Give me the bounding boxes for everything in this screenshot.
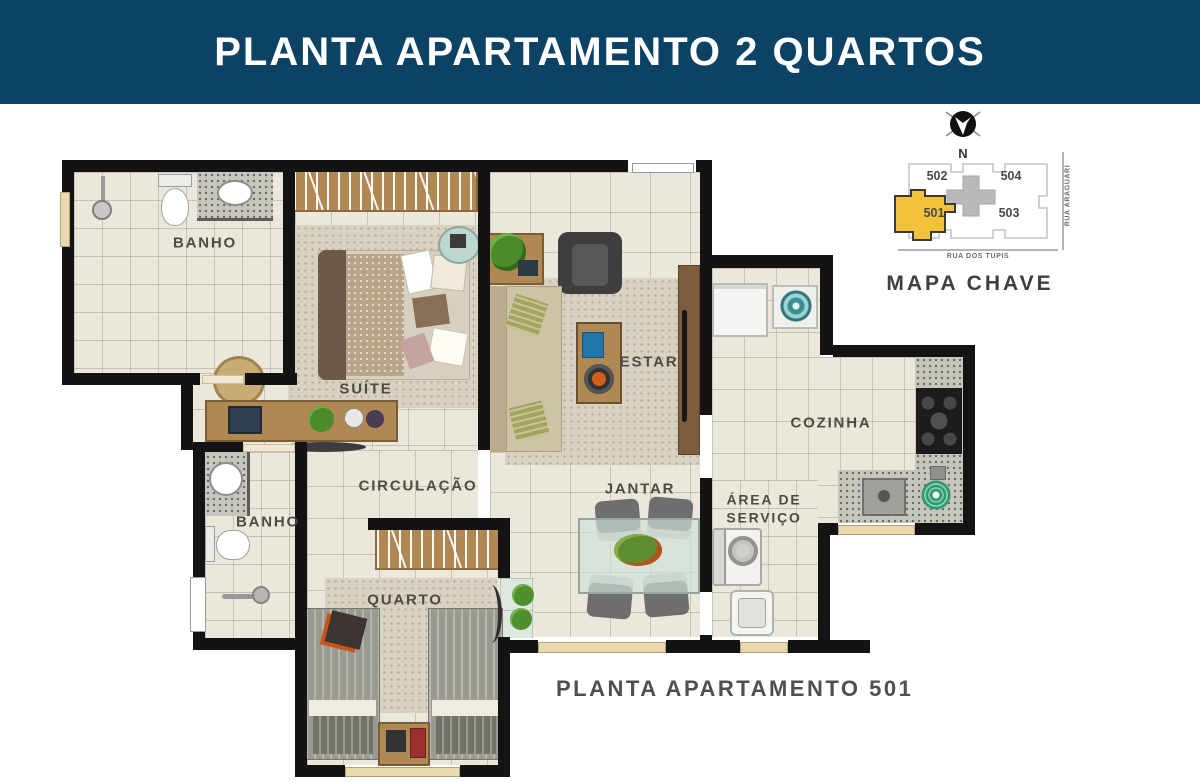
unit-label-504: 504 [993,169,1029,183]
wall [510,640,538,653]
window [345,767,460,777]
room-label-jantar: JANTAR [605,481,676,498]
vanity-sink-suite [217,180,253,206]
wall [478,160,490,450]
wall [818,523,830,640]
toilet-icon-social [216,530,250,560]
wall [712,255,833,268]
plan-caption: PLANTA APARTAMENTO 501 [556,676,913,702]
wardrobe-quarto-icon [375,526,503,570]
vanity-table-items [450,234,466,248]
keymap-title: MAPA CHAVE [880,272,1060,296]
wall [820,255,833,355]
wardrobe-suite-icon [292,166,478,212]
floorplan-page: PLANTA APARTAMENTO 2 QUARTOS [0,0,1200,782]
bed-right-pillow [434,716,496,754]
wall [498,637,510,777]
wall [700,478,712,592]
street-line-bottom [898,249,1058,251]
vanity-edge-social [247,448,250,516]
entry-door-icon [632,163,694,173]
nightstand-magazine [410,728,426,758]
wall [788,640,870,653]
wall [498,518,510,578]
wall [963,345,975,535]
tv-icon [682,310,687,422]
keymap-building [893,152,1063,247]
window [740,642,788,653]
fridge-icon [712,283,768,337]
toilet-icon-suite [161,188,189,226]
room-label-quarto: QUARTO [367,592,443,609]
toilet-tank-social [205,526,215,562]
wall [193,442,205,577]
desk-bowl [344,408,364,428]
window [60,192,70,247]
room-label-suite: SUÍTE [339,381,392,398]
desk-bowl-dark [366,410,384,428]
bed-suite-foot-blanket [318,250,346,380]
washer-drum-icon [779,289,813,323]
wall [915,523,975,535]
wall [700,635,712,653]
wall [295,765,345,777]
unit-label-503: 503 [991,206,1027,220]
room-label-area-servico: ÁREA DE SERVIÇO [716,492,812,527]
washing-machine-drum [728,536,758,566]
sink-drain [878,490,890,502]
unit-label-501: 501 [916,206,952,220]
room-label-banho-suite: BANHO [173,235,237,252]
room-label-estar: ESTAR [620,354,679,371]
wall [193,638,307,650]
room-label-banho-social: BANHO [236,514,300,531]
wall [62,373,200,385]
washing-machine-lid [714,530,726,584]
side-table-book [518,260,538,276]
door-threshold [243,444,295,452]
wall [368,518,510,530]
wall [245,373,297,385]
vanity-edge [197,218,273,221]
drainer-cup [930,466,946,480]
shower-head-icon [92,200,112,220]
bed-suite-pillow [412,294,450,328]
laundry-tank-basin [738,598,766,628]
sofa-back [490,286,506,452]
wall [460,765,510,777]
cooktop-icon [916,388,962,454]
wall [62,160,628,172]
door-threshold [202,375,244,384]
compass-icon [940,106,986,146]
wall [700,160,712,415]
street-label-bottom: RUA DOS TUPIS [898,253,1058,260]
window [538,642,666,653]
armchair-seat [572,244,608,286]
wall [283,160,295,373]
desk-laptop-icon [228,406,262,434]
unit-label-502: 502 [919,169,955,183]
window [838,525,915,535]
toilet-tank-suite [158,174,192,187]
dish-drainer-icon [920,478,952,512]
street-label-right: RUA ARAGUARI [1065,156,1072,236]
wall [295,442,307,777]
header-banner: PLANTA APARTAMENTO 2 QUARTOS [0,0,1200,104]
bed-left-sheet [309,700,376,716]
bed-left-pillow [311,716,373,754]
bed-suite-quilt [346,254,404,376]
window [190,577,206,632]
desk-plant-icon [308,406,334,432]
vanity-sink-social [209,462,243,496]
bed-right-sheet [432,700,499,716]
coffee-table-books [582,332,604,358]
nightstand-lamp [386,730,406,752]
page-title: PLANTA APARTAMENTO 2 QUARTOS [214,30,986,75]
room-label-circulacao: CIRCULAÇÃO [359,478,478,495]
wall [833,345,975,357]
room-label-cozinha: COZINHA [791,415,872,432]
table-centerpiece [614,534,662,566]
plant-icon [510,608,532,630]
towel-ring-icon [252,586,270,604]
tray-fruit [592,372,606,386]
wall [181,373,193,450]
plant-icon [512,584,534,606]
